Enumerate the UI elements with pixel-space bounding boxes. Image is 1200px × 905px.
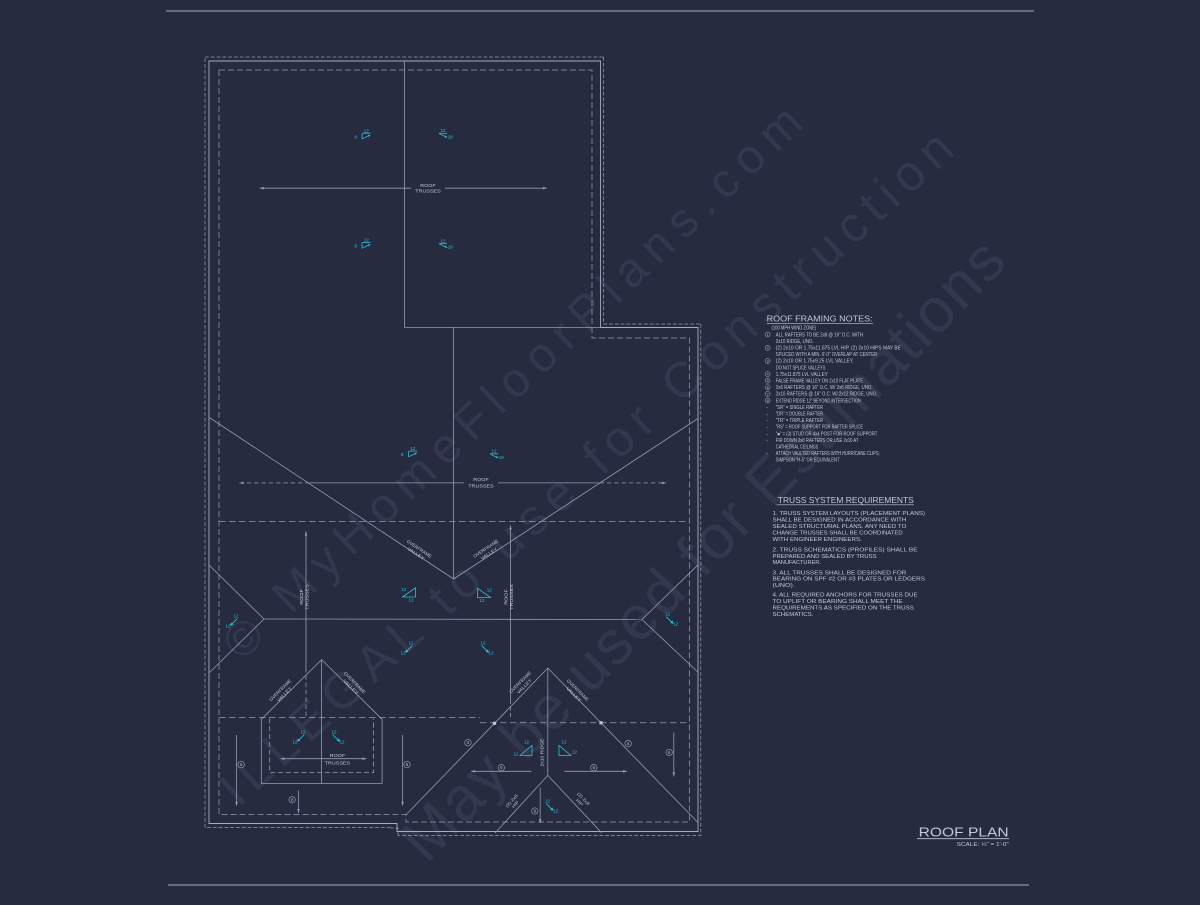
svg-text:REQUIREMENTS AS SPECIFIED ON T: REQUIREMENTS AS SPECIFIED ON THE TRUSS <box>773 606 914 612</box>
svg-text:ATTACH VAULTED RAFTERS WITH HU: ATTACH VAULTED RAFTERS WITH HURRICANE CL… <box>776 451 880 457</box>
svg-text:5: 5 <box>767 379 769 383</box>
svg-text:12: 12 <box>401 587 407 592</box>
svg-text:TRUSSES: TRUSSES <box>415 189 441 194</box>
svg-text:12: 12 <box>300 730 306 735</box>
svg-text:SHALL BE DESIGNED IN ACCORDANC: SHALL BE DESIGNED IN ACCORDANCE WITH <box>773 517 907 523</box>
svg-text:12: 12 <box>488 651 494 656</box>
svg-text:1: 1 <box>767 333 769 337</box>
svg-text:4: 4 <box>767 373 769 377</box>
svg-text:12: 12 <box>524 740 530 745</box>
svg-text:8: 8 <box>355 134 358 139</box>
svg-text:12: 12 <box>480 641 486 646</box>
svg-text:WITH ENGINEER ENGINEERS.: WITH ENGINEER ENGINEERS. <box>773 537 863 543</box>
svg-text:-: - <box>766 425 768 431</box>
svg-text:18: 18 <box>499 455 505 460</box>
svg-text:(100 MPH WIND ZONE): (100 MPH WIND ZONE) <box>772 326 817 332</box>
svg-text:12: 12 <box>561 740 567 745</box>
svg-text:12: 12 <box>400 651 406 656</box>
svg-text:ROOF: ROOF <box>473 477 489 482</box>
svg-text:"DR" = DOUBLE RAFTER: "DR" = DOUBLE RAFTER <box>776 412 824 418</box>
svg-text:12: 12 <box>491 449 497 454</box>
svg-text:(2) 2x10 OR 1.75x9.25 LVL VALL: (2) 2x10 OR 1.75x9.25 LVL VALLEY. <box>776 359 854 365</box>
svg-text:2x6 RAFTERS @ 16" O.C. W/ 2x8: 2x6 RAFTERS @ 16" O.C. W/ 2x8 RIDGE, UNO… <box>776 385 873 391</box>
svg-text:DO NOT SPLICE VALLEYS: DO NOT SPLICE VALLEYS <box>776 365 826 371</box>
svg-text:-: - <box>766 412 768 418</box>
svg-text:12: 12 <box>440 238 446 243</box>
svg-text:1. TRUSS SYSTEM LAYOUTS (PLACE: 1. TRUSS SYSTEM LAYOUTS (PLACEMENT PLANS… <box>773 511 926 517</box>
svg-text:12: 12 <box>233 614 239 619</box>
svg-text:-: - <box>766 418 768 424</box>
svg-text:2. TRUSS SCHEMATICS (PROFILES): 2. TRUSS SCHEMATICS (PROFILES) SHALL BE <box>773 548 918 554</box>
svg-text:12: 12 <box>339 740 345 745</box>
svg-text:12: 12 <box>292 740 298 745</box>
svg-text:12: 12 <box>513 751 519 756</box>
svg-text:TRUSSES: TRUSSES <box>509 584 514 610</box>
svg-text:SCHEMATICS.: SCHEMATICS. <box>773 612 814 618</box>
svg-text:12: 12 <box>364 128 370 133</box>
svg-text:12: 12 <box>408 641 414 646</box>
svg-text:ALL RAFTERS TO BE 2x8 @ 16" O.: ALL RAFTERS TO BE 2x8 @ 16" O.C. WITH <box>776 332 864 338</box>
svg-text:8: 8 <box>767 399 769 403</box>
svg-text:1.75x11.875 LVL VALLEY: 1.75x11.875 LVL VALLEY <box>776 372 828 378</box>
svg-text:18: 18 <box>448 245 454 250</box>
svg-text:MANUFACTURER.: MANUFACTURER. <box>773 560 822 566</box>
svg-text:12: 12 <box>331 730 337 735</box>
svg-text:12: 12 <box>440 128 446 133</box>
svg-text:FALSE FRAME VALLEY ON 2x10 FLA: FALSE FRAME VALLEY ON 2x10 FLAT PLATE <box>776 379 864 385</box>
svg-text:-: - <box>766 405 768 411</box>
svg-text:SCALE: ¼" = 1'-0": SCALE: ¼" = 1'-0" <box>957 842 1009 848</box>
svg-text:"■" = (3) STUD OR 4x4 POST FOR: "■" = (3) STUD OR 4x4 POST FOR ROOF SUPP… <box>776 431 878 437</box>
svg-text:12: 12 <box>487 588 493 593</box>
svg-text:12: 12 <box>665 612 671 617</box>
svg-text:SIMPSON "H-5" OR EQUIVALENT: SIMPSON "H-5" OR EQUIVALENT <box>776 458 840 464</box>
svg-text:PREPARED AND SEALED BY TRUSS: PREPARED AND SEALED BY TRUSS <box>773 554 877 560</box>
svg-text:ROOF FRAMING NOTES:: ROOF FRAMING NOTES: <box>767 313 873 323</box>
svg-text:ROOF: ROOF <box>503 589 508 605</box>
svg-text:(2) 2x10 OR 1.75x11.875 LVL HI: (2) 2x10 OR 1.75x11.875 LVL HIP. (2) 2x1… <box>776 346 902 352</box>
svg-text:TRUSSES: TRUSSES <box>325 761 351 766</box>
svg-text:ROOF: ROOF <box>299 589 304 605</box>
svg-text:CHANGE TRUSSES SHALL BE COORDI: CHANGE TRUSSES SHALL BE COORDINATED <box>773 531 903 537</box>
svg-text:12: 12 <box>479 598 485 603</box>
svg-text:18: 18 <box>448 134 454 139</box>
svg-text:12: 12 <box>364 238 370 243</box>
svg-text:12: 12 <box>553 809 559 814</box>
svg-text:2x10 RIDGE: 2x10 RIDGE <box>540 738 545 766</box>
svg-text:12: 12 <box>673 622 679 627</box>
svg-text:FIR DOWN 2x8 RAFTERS OR USE 2x: FIR DOWN 2x8 RAFTERS OR USE 2x10 AT <box>776 438 859 444</box>
svg-text:8: 8 <box>355 244 358 249</box>
svg-text:3. ALL TRUSSES SHALL BE DESIGN: 3. ALL TRUSSES SHALL BE DESIGNED FOR <box>773 570 907 576</box>
svg-text:TRUSSES: TRUSSES <box>468 484 494 489</box>
svg-text:12: 12 <box>408 597 414 602</box>
svg-text:ROOF: ROOF <box>330 753 346 758</box>
svg-text:© MyHomeFloorPlans.com: © MyHomeFloorPlans.com <box>213 95 813 670</box>
svg-text:TRUSS SYSTEM REQUIREMENTS: TRUSS SYSTEM REQUIREMENTS <box>778 496 915 505</box>
svg-text:BEARING ON SPF #2 OR #3 PLATES: BEARING ON SPF #2 OR #3 PLATES OR LEDGER… <box>773 577 926 583</box>
svg-text:12: 12 <box>545 799 551 804</box>
svg-text:CATHEDRAL CEILINGS: CATHEDRAL CEILINGS <box>776 445 819 451</box>
svg-text:TRUSSES: TRUSSES <box>305 584 310 610</box>
svg-text:SEALED STRUCTURAL PLANS. ANY N: SEALED STRUCTURAL PLANS. ANY NEED TO <box>773 524 907 530</box>
svg-text:(UNO).: (UNO). <box>773 583 796 589</box>
svg-text:ROOF PLAN: ROOF PLAN <box>919 824 1009 839</box>
svg-text:6: 6 <box>767 386 769 390</box>
svg-text:12: 12 <box>225 624 231 629</box>
svg-text:2x10 RIDGE, UNO.: 2x10 RIDGE, UNO. <box>776 339 814 345</box>
svg-text:12: 12 <box>572 749 578 754</box>
svg-text:12: 12 <box>410 446 416 451</box>
svg-text:ROOF: ROOF <box>420 183 436 188</box>
svg-text:7: 7 <box>767 392 769 396</box>
svg-text:TO UPLIFT OR BEARING SHALL MEE: TO UPLIFT OR BEARING SHALL MEET THE <box>773 599 903 605</box>
svg-text:SPLICED WITH A MIN. 6'-0" OVER: SPLICED WITH A MIN. 6'-0" OVERLAP AT CEN… <box>776 352 878 358</box>
svg-text:3: 3 <box>767 359 769 363</box>
svg-text:"TR" = TRIPLE RAFTER: "TR" = TRIPLE RAFTER <box>776 418 824 424</box>
svg-text:"SR" = SINGLE RAFTER: "SR" = SINGLE RAFTER <box>776 405 824 411</box>
svg-text:EXTEND RIDGE 12" BEYOND INTERS: EXTEND RIDGE 12" BEYOND INTERSECTION <box>776 398 861 404</box>
svg-text:4. ALL REQUIRED ANCHORS FOR TR: 4. ALL REQUIRED ANCHORS FOR TRUSSES DUE <box>773 593 918 599</box>
svg-text:"RS" = ROOF SUPPORT FOR RAFTER: "RS" = ROOF SUPPORT FOR RAFTER SPLICE <box>776 425 864 431</box>
svg-text:2: 2 <box>767 346 769 350</box>
svg-text:2x10 RAFTERS @ 16" O.C. W/ 2x1: 2x10 RAFTERS @ 16" O.C. W/ 2x12 RIDGE, U… <box>776 392 878 398</box>
